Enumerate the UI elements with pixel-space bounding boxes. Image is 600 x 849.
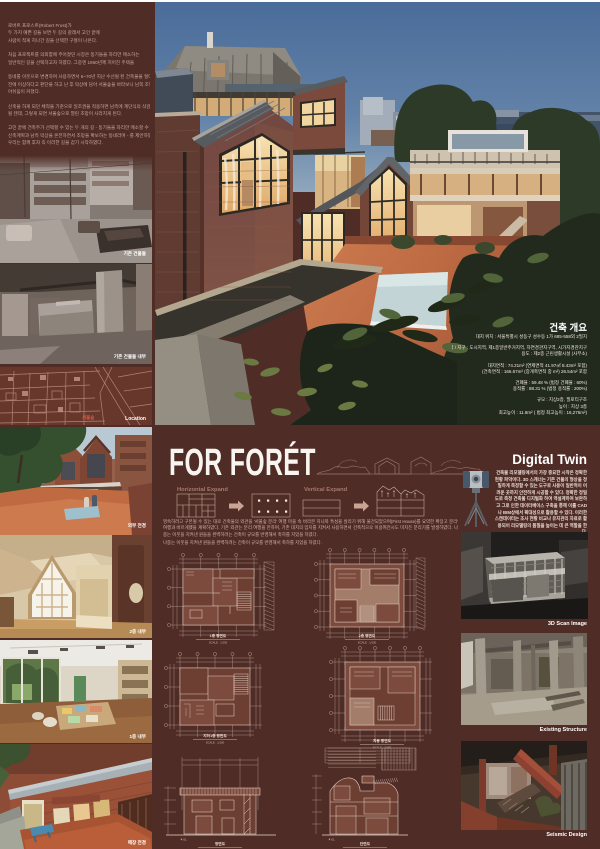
svg-text:정면도: 정면도 <box>215 841 226 846</box>
svg-text:2층 평면도: 2층 평면도 <box>359 633 376 638</box>
svg-text:기존 건물들 내부: 기존 건물들 내부 <box>114 353 147 360</box>
svg-text:Horizontal Expand: Horizontal Expand <box>177 487 228 493</box>
svg-text:SCALE : 1/100: SCALE : 1/100 <box>373 746 392 750</box>
svg-text:Location: Location <box>125 416 146 422</box>
svg-text:매장 전경: 매장 전경 <box>128 839 146 846</box>
svg-text:지하1층 평면도: 지하1층 평면도 <box>203 733 227 738</box>
svg-text:서울숲: 서울숲 <box>82 414 94 421</box>
svg-text:기존 건물들: 기존 건물들 <box>124 250 147 257</box>
svg-text:1층 평면도: 1층 평면도 <box>210 633 227 638</box>
svg-text:SCALE : 1/100: SCALE : 1/100 <box>209 641 228 645</box>
svg-text:1층 내부: 1층 내부 <box>129 733 146 740</box>
svg-text:▼GL: ▼GL <box>180 838 187 842</box>
svg-text:단면도: 단면도 <box>360 841 371 846</box>
svg-text:2층 내부: 2층 내부 <box>129 628 146 635</box>
svg-text:외부 전경: 외부 전경 <box>128 522 146 529</box>
svg-text:SCALE : 1/100: SCALE : 1/100 <box>358 641 377 645</box>
svg-text:SCALE : 1/100: SCALE : 1/100 <box>206 741 225 745</box>
svg-text:▼GL: ▼GL <box>328 838 335 842</box>
svg-text:지붕 평면도: 지붕 평면도 <box>373 738 392 743</box>
svg-text:Vertical Expand: Vertical Expand <box>304 487 348 493</box>
